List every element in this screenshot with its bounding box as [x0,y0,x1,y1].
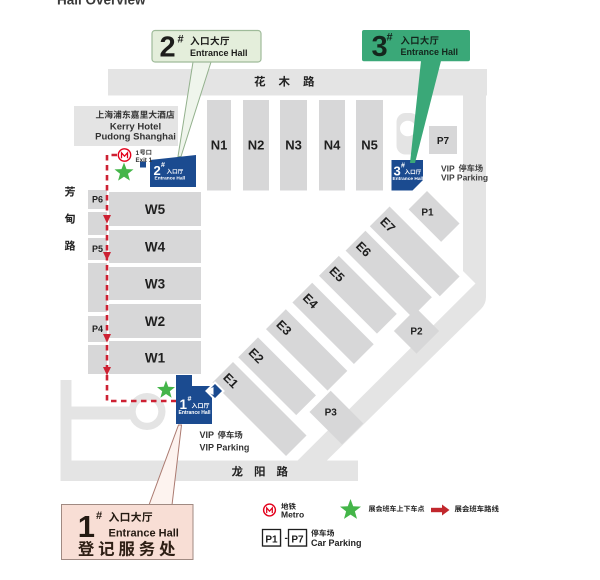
svg-text:Entrance Hall: Entrance Hall [179,410,212,416]
svg-text:Hall Overview: Hall Overview [57,0,146,8]
svg-text:W1: W1 [145,350,166,365]
svg-text:Entrance Hall: Entrance Hall [393,176,424,182]
svg-text:Car Parking: Car Parking [311,538,362,548]
svg-text:N1: N1 [211,138,228,153]
svg-text:#: # [161,162,165,169]
svg-text:VIP: VIP [200,430,215,440]
svg-text:1: 1 [136,150,140,157]
svg-text:W5: W5 [145,202,166,217]
svg-text:3: 3 [372,31,388,63]
svg-text:2: 2 [160,32,176,64]
svg-text:P7: P7 [291,535,304,546]
svg-text:Exit 1: Exit 1 [136,157,153,164]
svg-text:1: 1 [78,509,95,544]
svg-text:N2: N2 [248,138,265,153]
svg-text:-: - [285,533,288,544]
svg-text:P3: P3 [325,408,338,419]
svg-text:P4: P4 [92,324,103,334]
svg-text:N3: N3 [285,138,302,153]
svg-text:VIP Parking: VIP Parking [200,443,250,453]
svg-text:W3: W3 [145,276,166,291]
svg-text:P6: P6 [92,195,103,205]
svg-text:#: # [96,510,102,522]
svg-text:P1: P1 [421,208,434,219]
svg-text:#: # [387,32,393,44]
svg-text:#: # [401,163,405,170]
svg-text:P1: P1 [265,535,278,546]
svg-text:Entrance Hall: Entrance Hall [109,528,179,540]
svg-text:N4: N4 [324,138,341,153]
svg-text:Pudong Shanghai: Pudong Shanghai [95,132,176,143]
svg-text:#: # [178,34,184,46]
svg-text:P7: P7 [437,136,450,147]
svg-text:N5: N5 [361,138,378,153]
svg-text:P5: P5 [92,244,103,254]
svg-text:Entrance Hall: Entrance Hall [190,48,248,58]
svg-text:Metro: Metro [281,510,304,520]
svg-text:VIP Parking: VIP Parking [441,173,488,183]
svg-text:Entrance Hall: Entrance Hall [155,176,186,182]
svg-text:W2: W2 [145,314,165,329]
svg-text:W4: W4 [145,239,166,254]
svg-text:#: # [188,396,192,403]
svg-text:P2: P2 [410,327,423,338]
svg-text:Entrance Hall: Entrance Hall [401,47,459,57]
